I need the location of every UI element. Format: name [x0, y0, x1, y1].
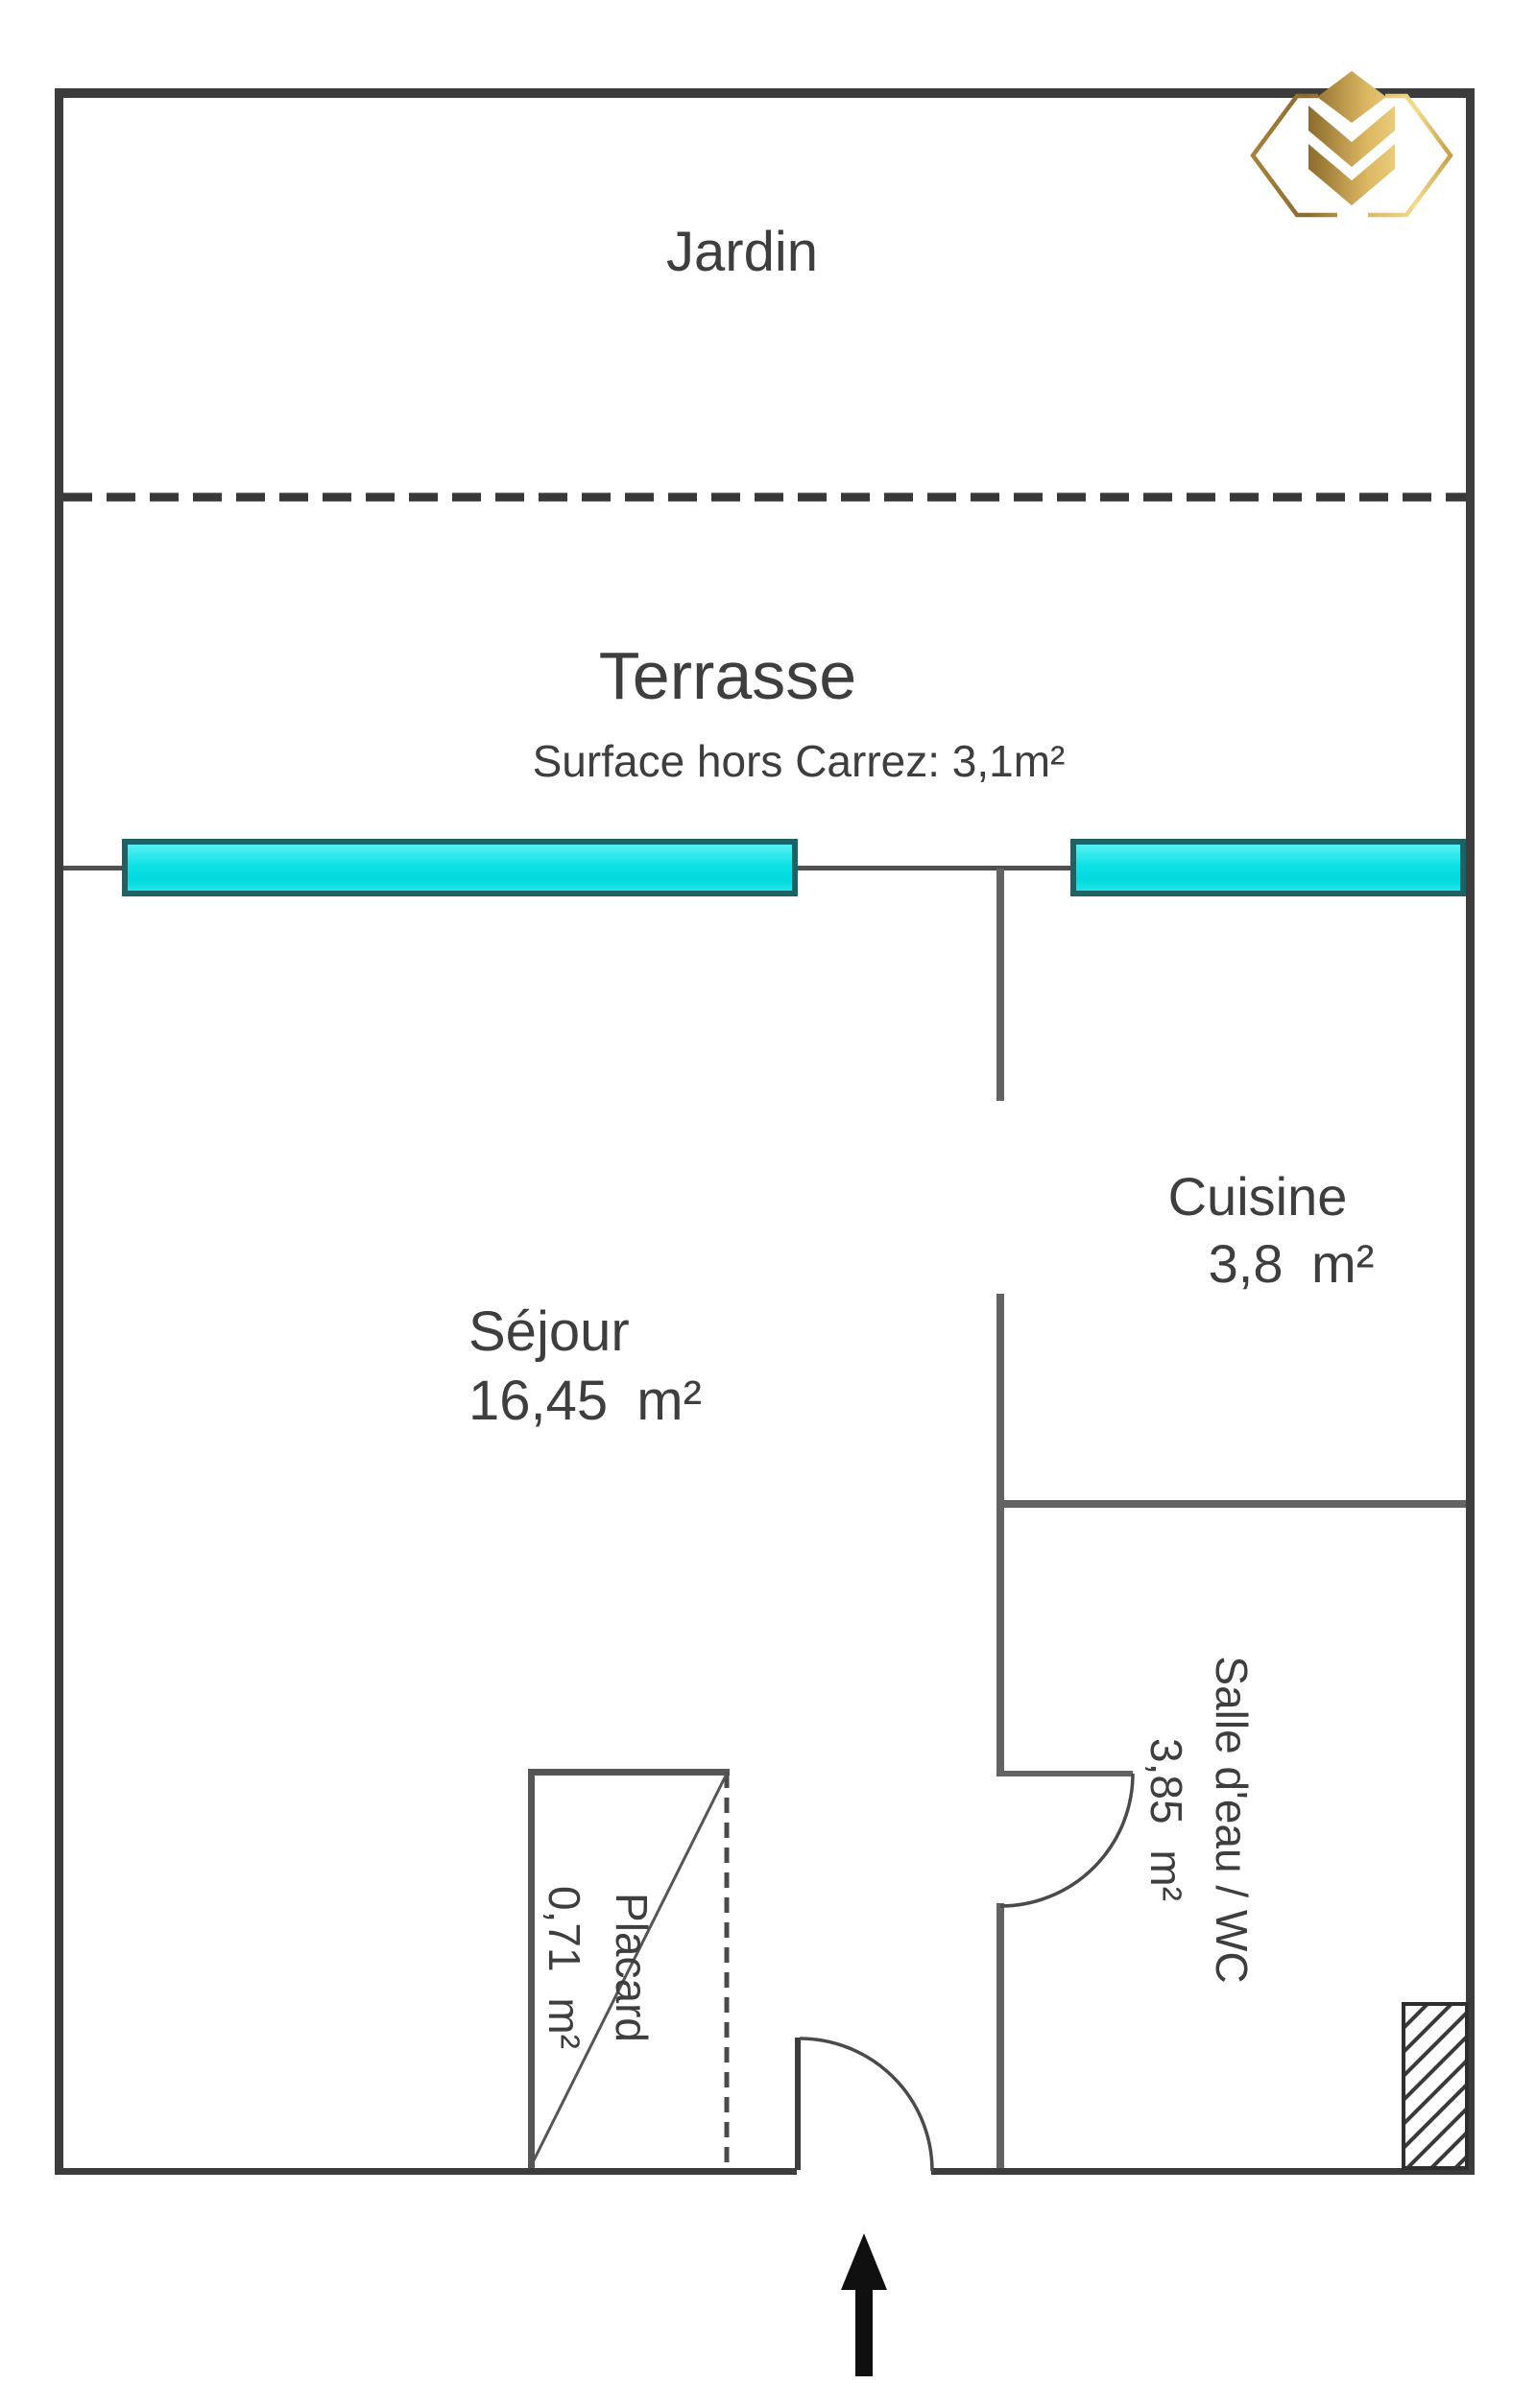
hatched-shaft: [1404, 2004, 1467, 2168]
placard-title: Placard: [598, 1833, 665, 2102]
cuisine-title: Cuisine: [1066, 1163, 1450, 1230]
entrance-arrow-icon: [841, 2233, 887, 2376]
jardin-title: Jardin: [454, 219, 1030, 286]
salle-eau-title: Salle d'eau / WC: [1199, 1618, 1264, 2021]
brand-logo-icon: [1253, 71, 1451, 215]
room-label-terrasse: Terrasse: [440, 635, 1016, 716]
terrasse-title: Terrasse: [440, 635, 1016, 716]
terrasse-note-text: Surface hors Carrez: 3,1m²: [415, 735, 1183, 788]
room-label-placard: Placard 0,71 m²: [531, 1833, 665, 2102]
room-label-sejour: Séjour 16,45 m²: [468, 1298, 702, 1436]
room-label-cuisine: Cuisine 3,8 m²: [1066, 1163, 1450, 1298]
salle-eau-area: 3,85 m²: [1134, 1618, 1199, 2021]
terrasse-surface-note: Surface hors Carrez: 3,1m²: [415, 735, 1183, 788]
door-arc-entry: [800, 2038, 932, 2171]
sejour-title: Séjour: [468, 1298, 702, 1367]
door-arc-bathroom: [1000, 1774, 1133, 1906]
room-label-jardin: Jardin: [454, 219, 1030, 286]
cuisine-area: 3,8 m²: [1099, 1230, 1483, 1298]
placard-area: 0,71 m²: [531, 1833, 598, 2102]
floor-plan: Jardin Terrasse Surface hors Carrez: 3,1…: [0, 0, 1536, 2408]
sejour-area: 16,45 m²: [468, 1367, 702, 1436]
room-label-salle-eau: Salle d'eau / WC 3,85 m²: [1134, 1618, 1264, 2021]
